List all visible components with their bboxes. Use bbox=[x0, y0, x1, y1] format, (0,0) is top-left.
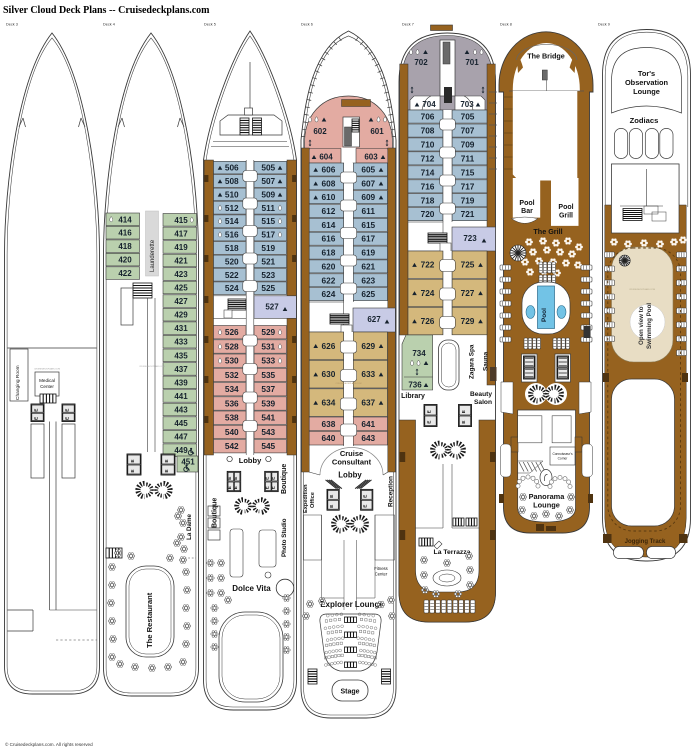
svg-text:Deck 6: Deck 6 bbox=[301, 22, 313, 26]
svg-text:CRUISEDECKPLANS.COM: CRUISEDECKPLANS.COM bbox=[139, 365, 165, 368]
svg-text:Observation: Observation bbox=[625, 78, 669, 87]
svg-text:726: 726 bbox=[421, 316, 435, 326]
svg-text:Pool: Pool bbox=[519, 200, 534, 207]
svg-text:641: 641 bbox=[361, 419, 375, 429]
svg-text:421: 421 bbox=[174, 257, 188, 266]
svg-text:Lounge: Lounge bbox=[533, 501, 560, 510]
svg-text:La Terrazza: La Terrazza bbox=[434, 549, 471, 556]
svg-text:Bar: Bar bbox=[521, 208, 533, 215]
svg-text:Salon: Salon bbox=[474, 399, 492, 406]
svg-text:Zodiacs: Zodiacs bbox=[630, 116, 659, 125]
svg-text:Boutique: Boutique bbox=[281, 464, 288, 494]
svg-text:640: 640 bbox=[322, 433, 336, 443]
svg-text:525: 525 bbox=[261, 283, 275, 293]
svg-text:520: 520 bbox=[225, 256, 239, 266]
svg-text:CRUISEDECKPLANS.COM: CRUISEDECKPLANS.COM bbox=[34, 368, 60, 371]
svg-text:705: 705 bbox=[461, 112, 475, 122]
svg-text:Deck 9: Deck 9 bbox=[598, 22, 610, 26]
svg-text:528: 528 bbox=[225, 342, 239, 352]
svg-text:540: 540 bbox=[225, 427, 239, 437]
svg-text:627: 627 bbox=[367, 315, 381, 324]
svg-text:545: 545 bbox=[261, 441, 275, 451]
svg-text:703: 703 bbox=[460, 100, 474, 109]
svg-text:Consultant: Consultant bbox=[332, 458, 372, 467]
svg-text:625: 625 bbox=[361, 289, 375, 299]
svg-text:702: 702 bbox=[414, 58, 428, 67]
svg-text:439: 439 bbox=[174, 378, 188, 387]
svg-text:718: 718 bbox=[421, 195, 435, 205]
svg-text:Dolce Vita: Dolce Vita bbox=[232, 584, 271, 593]
svg-text:721: 721 bbox=[461, 209, 475, 219]
svg-text:722: 722 bbox=[421, 260, 435, 270]
svg-text:523: 523 bbox=[261, 270, 275, 280]
svg-text:533: 533 bbox=[261, 356, 275, 366]
svg-text:515: 515 bbox=[261, 216, 275, 226]
svg-text:514: 514 bbox=[225, 216, 239, 226]
svg-text:531: 531 bbox=[261, 342, 275, 352]
svg-text:616: 616 bbox=[322, 234, 336, 244]
svg-text:420: 420 bbox=[118, 256, 132, 265]
svg-text:522: 522 bbox=[225, 270, 239, 280]
svg-text:521: 521 bbox=[261, 256, 275, 266]
svg-text:Lobby: Lobby bbox=[338, 471, 362, 480]
svg-text:717: 717 bbox=[461, 181, 475, 191]
svg-text:437: 437 bbox=[174, 365, 188, 374]
svg-text:511: 511 bbox=[262, 203, 276, 213]
svg-text:615: 615 bbox=[361, 220, 375, 230]
svg-text:505: 505 bbox=[261, 163, 275, 173]
svg-text:Swimming Pool: Swimming Pool bbox=[646, 303, 653, 349]
svg-text:607: 607 bbox=[361, 178, 375, 188]
svg-text:720: 720 bbox=[421, 209, 435, 219]
svg-text:630: 630 bbox=[322, 369, 336, 379]
svg-text:618: 618 bbox=[322, 248, 336, 258]
svg-text:510: 510 bbox=[225, 189, 239, 199]
svg-text:Sauna: Sauna bbox=[483, 351, 490, 371]
svg-text:Office: Office bbox=[310, 492, 316, 508]
svg-text:Beauty: Beauty bbox=[470, 391, 492, 398]
svg-text:La Dame: La Dame bbox=[186, 514, 193, 540]
svg-text:537: 537 bbox=[261, 384, 275, 394]
svg-text:734: 734 bbox=[412, 349, 426, 358]
svg-text:609: 609 bbox=[361, 192, 375, 202]
svg-text:518: 518 bbox=[225, 243, 239, 253]
svg-text:419: 419 bbox=[174, 243, 188, 252]
svg-text:535: 535 bbox=[261, 370, 275, 380]
svg-text:621: 621 bbox=[361, 261, 375, 271]
svg-text:611: 611 bbox=[362, 206, 376, 216]
svg-text:Connoisseur's: Connoisseur's bbox=[552, 452, 573, 456]
svg-text:429: 429 bbox=[174, 311, 188, 320]
svg-text:Deck 8: Deck 8 bbox=[500, 22, 512, 26]
svg-text:415: 415 bbox=[174, 216, 188, 225]
svg-text:541: 541 bbox=[261, 413, 275, 423]
svg-text:519: 519 bbox=[261, 243, 275, 253]
svg-text:The Grill: The Grill bbox=[533, 227, 562, 236]
svg-text:706: 706 bbox=[421, 112, 435, 122]
svg-text:538: 538 bbox=[225, 413, 239, 423]
svg-text:614: 614 bbox=[322, 220, 336, 230]
svg-text:CRUISEDECKPLANS.COM: CRUISEDECKPLANS.COM bbox=[629, 288, 655, 291]
svg-text:Boutique: Boutique bbox=[212, 498, 219, 528]
svg-text:626: 626 bbox=[322, 341, 336, 351]
svg-text:620: 620 bbox=[322, 261, 336, 271]
svg-text:Stage: Stage bbox=[340, 689, 359, 696]
svg-text:723: 723 bbox=[463, 234, 477, 243]
svg-text:Deck 7: Deck 7 bbox=[402, 22, 414, 26]
svg-text:604: 604 bbox=[319, 153, 333, 162]
svg-text:Explorer Lounge: Explorer Lounge bbox=[320, 600, 384, 609]
svg-text:725: 725 bbox=[461, 260, 475, 270]
svg-text:542: 542 bbox=[225, 441, 239, 451]
svg-text:506: 506 bbox=[225, 163, 239, 173]
svg-text:606: 606 bbox=[322, 165, 336, 175]
svg-text:Jogging Track: Jogging Track bbox=[625, 539, 666, 545]
svg-text:The Restaurant: The Restaurant bbox=[145, 592, 154, 648]
svg-text:603: 603 bbox=[364, 153, 378, 162]
svg-text:CRUISEDECKPLANS.COM: CRUISEDECKPLANS.COM bbox=[336, 382, 362, 385]
svg-text:Library: Library bbox=[401, 393, 425, 400]
svg-text:449: 449 bbox=[174, 446, 188, 455]
svg-text:508: 508 bbox=[225, 176, 239, 186]
svg-text:532: 532 bbox=[225, 370, 239, 380]
svg-text:417: 417 bbox=[174, 229, 188, 238]
svg-text:451: 451 bbox=[181, 458, 195, 467]
svg-text:517: 517 bbox=[261, 230, 275, 240]
svg-text:712: 712 bbox=[421, 153, 435, 163]
svg-text:512: 512 bbox=[225, 203, 239, 213]
svg-text:736: 736 bbox=[408, 381, 422, 390]
svg-text:516: 516 bbox=[225, 230, 239, 240]
svg-text:701: 701 bbox=[465, 58, 479, 67]
svg-text:Launderette: Launderette bbox=[150, 239, 156, 272]
svg-text:Pool: Pool bbox=[541, 308, 548, 322]
svg-text:724: 724 bbox=[421, 288, 435, 298]
svg-text:433: 433 bbox=[174, 338, 188, 347]
svg-text:Expedition: Expedition bbox=[303, 484, 309, 513]
svg-text:637: 637 bbox=[361, 398, 375, 408]
svg-text:418: 418 bbox=[118, 242, 132, 251]
svg-text:610: 610 bbox=[322, 192, 336, 202]
svg-text:715: 715 bbox=[461, 167, 475, 177]
svg-text:602: 602 bbox=[313, 127, 327, 136]
svg-text:Fitness: Fitness bbox=[374, 566, 388, 571]
svg-text:422: 422 bbox=[118, 269, 132, 278]
svg-text:Pool: Pool bbox=[558, 204, 573, 211]
svg-text:601: 601 bbox=[370, 127, 384, 136]
svg-text:441: 441 bbox=[174, 392, 188, 401]
svg-text:619: 619 bbox=[361, 248, 375, 258]
svg-text:Zagara Spa: Zagara Spa bbox=[469, 344, 476, 379]
svg-text:Photo Studio: Photo Studio bbox=[281, 518, 288, 557]
svg-text:608: 608 bbox=[322, 178, 336, 188]
svg-text:524: 524 bbox=[225, 283, 239, 293]
svg-text:Deck 3: Deck 3 bbox=[6, 22, 18, 26]
svg-text:Tor's: Tor's bbox=[638, 69, 655, 78]
svg-text:612: 612 bbox=[322, 206, 336, 216]
svg-text:617: 617 bbox=[361, 234, 375, 244]
svg-text:707: 707 bbox=[461, 126, 475, 136]
svg-text:Open view to: Open view to bbox=[638, 306, 645, 345]
svg-text:623: 623 bbox=[361, 275, 375, 285]
svg-text:710: 710 bbox=[421, 139, 435, 149]
svg-text:Changing Room: Changing Room bbox=[15, 365, 21, 400]
svg-text:530: 530 bbox=[225, 356, 239, 366]
svg-text:527: 527 bbox=[265, 303, 279, 312]
svg-text:Medical: Medical bbox=[39, 378, 55, 383]
svg-text:634: 634 bbox=[322, 398, 336, 408]
svg-text:414: 414 bbox=[118, 215, 132, 224]
svg-text:629: 629 bbox=[361, 341, 375, 351]
svg-text:Center: Center bbox=[375, 572, 388, 577]
svg-text:729: 729 bbox=[461, 316, 475, 326]
svg-text:443: 443 bbox=[174, 406, 188, 415]
svg-text:445: 445 bbox=[174, 419, 188, 428]
svg-text:Deck 5: Deck 5 bbox=[204, 22, 216, 26]
svg-text:534: 534 bbox=[225, 384, 239, 394]
svg-text:© Cruisedeckplans.com. All rig: © Cruisedeckplans.com. All rights reserv… bbox=[5, 741, 93, 747]
svg-text:708: 708 bbox=[421, 126, 435, 136]
svg-text:Reception: Reception bbox=[388, 476, 395, 507]
svg-text:536: 536 bbox=[225, 399, 239, 409]
svg-text:Grill: Grill bbox=[559, 213, 573, 220]
svg-text:704: 704 bbox=[422, 100, 436, 109]
svg-text:624: 624 bbox=[322, 289, 336, 299]
svg-text:719: 719 bbox=[461, 195, 475, 205]
svg-text:709: 709 bbox=[461, 139, 475, 149]
svg-text:711: 711 bbox=[461, 153, 475, 163]
svg-text:638: 638 bbox=[322, 419, 336, 429]
svg-text:507: 507 bbox=[261, 176, 275, 186]
svg-text:Center: Center bbox=[40, 384, 54, 389]
svg-text:Silver Cloud Deck Plans -- Cru: Silver Cloud Deck Plans -- Cruisedeckpla… bbox=[3, 5, 210, 16]
svg-text:529: 529 bbox=[261, 327, 275, 337]
svg-text:The Bridge: The Bridge bbox=[527, 52, 565, 61]
svg-text:431: 431 bbox=[174, 324, 188, 333]
svg-text:643: 643 bbox=[361, 433, 375, 443]
svg-text:716: 716 bbox=[421, 181, 435, 191]
svg-text:416: 416 bbox=[118, 229, 132, 238]
svg-text:427: 427 bbox=[174, 297, 188, 306]
svg-text:526: 526 bbox=[225, 327, 239, 337]
svg-text:Lounge: Lounge bbox=[633, 87, 660, 96]
svg-text:Lobby: Lobby bbox=[239, 456, 262, 465]
svg-text:543: 543 bbox=[261, 427, 275, 437]
svg-text:425: 425 bbox=[174, 284, 188, 293]
svg-text:Corner: Corner bbox=[558, 457, 569, 461]
svg-text:447: 447 bbox=[174, 433, 188, 442]
svg-text:509: 509 bbox=[261, 189, 275, 199]
svg-text:539: 539 bbox=[261, 399, 275, 409]
svg-text:622: 622 bbox=[322, 275, 336, 285]
svg-text:435: 435 bbox=[174, 351, 188, 360]
svg-text:423: 423 bbox=[174, 270, 188, 279]
svg-text:605: 605 bbox=[361, 165, 375, 175]
svg-text:633: 633 bbox=[361, 369, 375, 379]
svg-text:Deck 4: Deck 4 bbox=[103, 22, 115, 26]
svg-text:727: 727 bbox=[461, 288, 475, 298]
svg-text:714: 714 bbox=[421, 167, 435, 177]
